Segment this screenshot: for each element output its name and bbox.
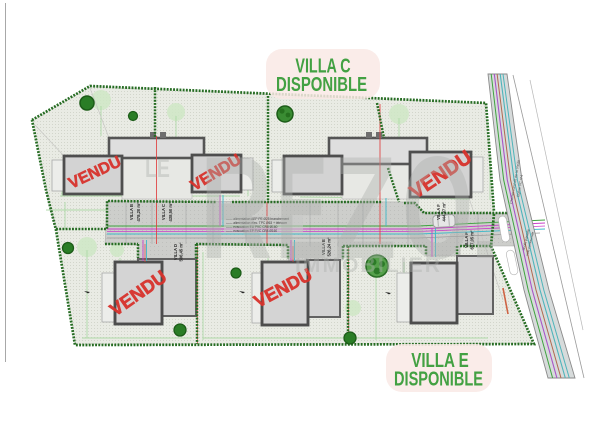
svg-text:VILLA C: VILLA C <box>161 204 166 220</box>
svg-text:DISPONIBLE: DISPONIBLE <box>394 367 483 390</box>
svg-text:IMMOBILIER: IMMOBILIER <box>295 254 442 277</box>
svg-text:LE: LE <box>145 153 170 182</box>
svg-text:438,50 m²: 438,50 m² <box>168 202 173 222</box>
svg-text:478,20 m²: 478,20 m² <box>136 202 141 222</box>
svg-text:VILLA D: VILLA D <box>173 244 178 260</box>
svg-text:VILLA B: VILLA B <box>129 204 134 220</box>
svg-text:R: R <box>200 126 272 289</box>
svg-text:596,45 m²: 596,45 m² <box>179 242 184 262</box>
svg-text:DISPONIBLE: DISPONIBLE <box>276 73 367 96</box>
